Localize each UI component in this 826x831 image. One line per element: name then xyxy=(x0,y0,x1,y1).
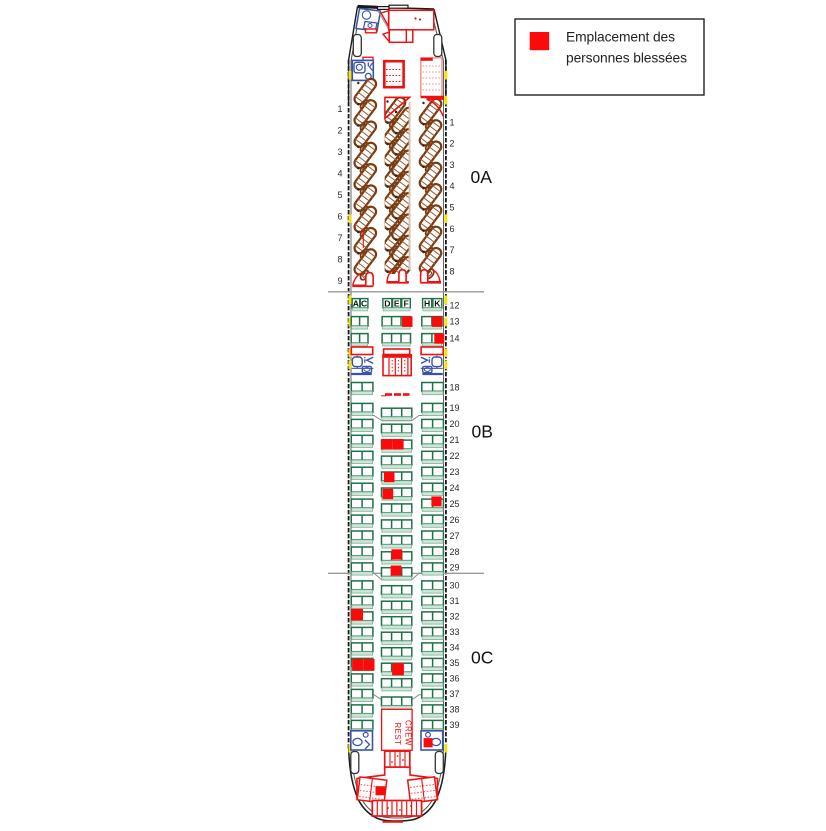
svg-text:CREW: CREW xyxy=(404,720,413,746)
svg-text:7: 7 xyxy=(450,245,455,255)
svg-text:28: 28 xyxy=(450,547,460,557)
svg-text:D: D xyxy=(384,299,390,309)
svg-text:33: 33 xyxy=(450,627,460,637)
svg-text:24: 24 xyxy=(450,483,460,493)
svg-text:0A: 0A xyxy=(471,167,493,187)
svg-text:19: 19 xyxy=(450,403,460,413)
svg-text:39: 39 xyxy=(450,720,460,730)
svg-text:REST: REST xyxy=(393,723,402,746)
svg-text:5: 5 xyxy=(337,190,342,200)
svg-text:8: 8 xyxy=(337,254,342,264)
svg-text:34: 34 xyxy=(450,643,460,653)
svg-text:14: 14 xyxy=(450,334,460,344)
svg-text:F: F xyxy=(403,299,408,309)
svg-text:35: 35 xyxy=(450,658,460,668)
svg-text:3: 3 xyxy=(337,147,342,157)
svg-text:30: 30 xyxy=(450,581,460,591)
svg-text:9: 9 xyxy=(337,276,342,286)
svg-text:38: 38 xyxy=(450,705,460,715)
svg-text:8: 8 xyxy=(450,266,455,276)
svg-text:29: 29 xyxy=(450,563,460,573)
svg-text:4: 4 xyxy=(337,168,342,178)
svg-text:personnes blessées: personnes blessées xyxy=(566,50,687,65)
svg-text:H: H xyxy=(424,299,430,309)
svg-text:26: 26 xyxy=(450,515,460,525)
svg-text:K: K xyxy=(434,299,441,309)
svg-text:6: 6 xyxy=(337,211,342,221)
svg-text:25: 25 xyxy=(450,499,460,509)
svg-text:0C: 0C xyxy=(471,648,493,668)
svg-text:13: 13 xyxy=(450,317,460,327)
svg-text:20: 20 xyxy=(450,419,460,429)
svg-text:2: 2 xyxy=(337,125,342,135)
svg-text:5: 5 xyxy=(450,203,455,213)
svg-text:36: 36 xyxy=(450,674,460,684)
svg-text:A: A xyxy=(353,299,359,309)
svg-text:21: 21 xyxy=(450,435,460,445)
svg-text:12: 12 xyxy=(450,300,460,310)
svg-text:2: 2 xyxy=(450,139,455,149)
svg-text:C: C xyxy=(361,299,367,309)
svg-text:1: 1 xyxy=(337,104,342,114)
svg-text:0B: 0B xyxy=(472,421,493,441)
svg-text:27: 27 xyxy=(450,531,460,541)
svg-text:37: 37 xyxy=(450,689,460,699)
svg-text:3: 3 xyxy=(450,160,455,170)
svg-text:22: 22 xyxy=(450,451,460,461)
svg-text:E: E xyxy=(394,299,400,309)
svg-text:31: 31 xyxy=(450,596,460,606)
svg-text:23: 23 xyxy=(450,467,460,477)
svg-text:6: 6 xyxy=(450,224,455,234)
svg-text:7: 7 xyxy=(337,233,342,243)
svg-text:1: 1 xyxy=(450,117,455,127)
svg-text:Emplacement des: Emplacement des xyxy=(566,29,675,44)
svg-text:4: 4 xyxy=(450,181,455,191)
svg-text:32: 32 xyxy=(450,612,460,622)
svg-text:18: 18 xyxy=(450,383,460,393)
